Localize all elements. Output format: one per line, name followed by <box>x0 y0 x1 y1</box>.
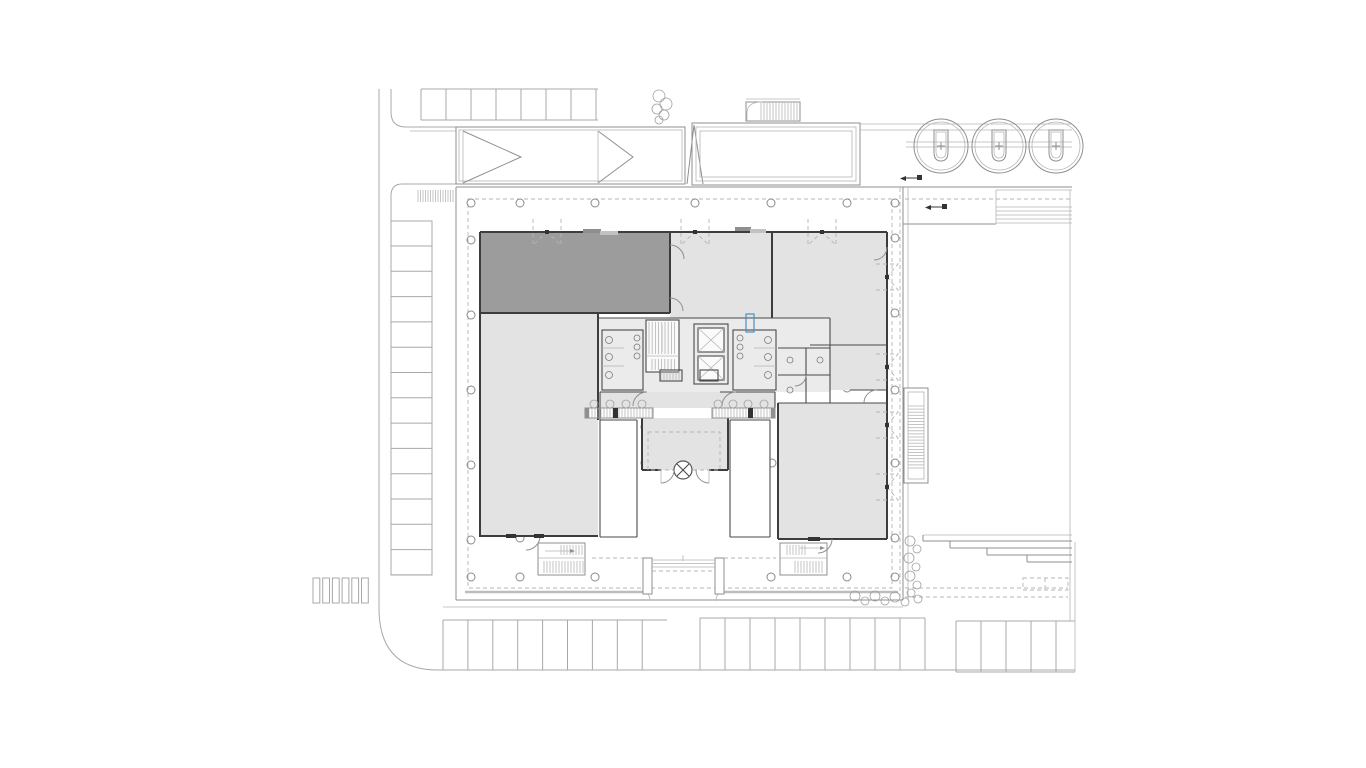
floor-plan-canvas <box>0 0 1366 768</box>
building-fills <box>480 233 887 539</box>
north-structures <box>456 90 1083 185</box>
plaza-east <box>900 175 1075 672</box>
drawing-viewport <box>0 0 1366 768</box>
